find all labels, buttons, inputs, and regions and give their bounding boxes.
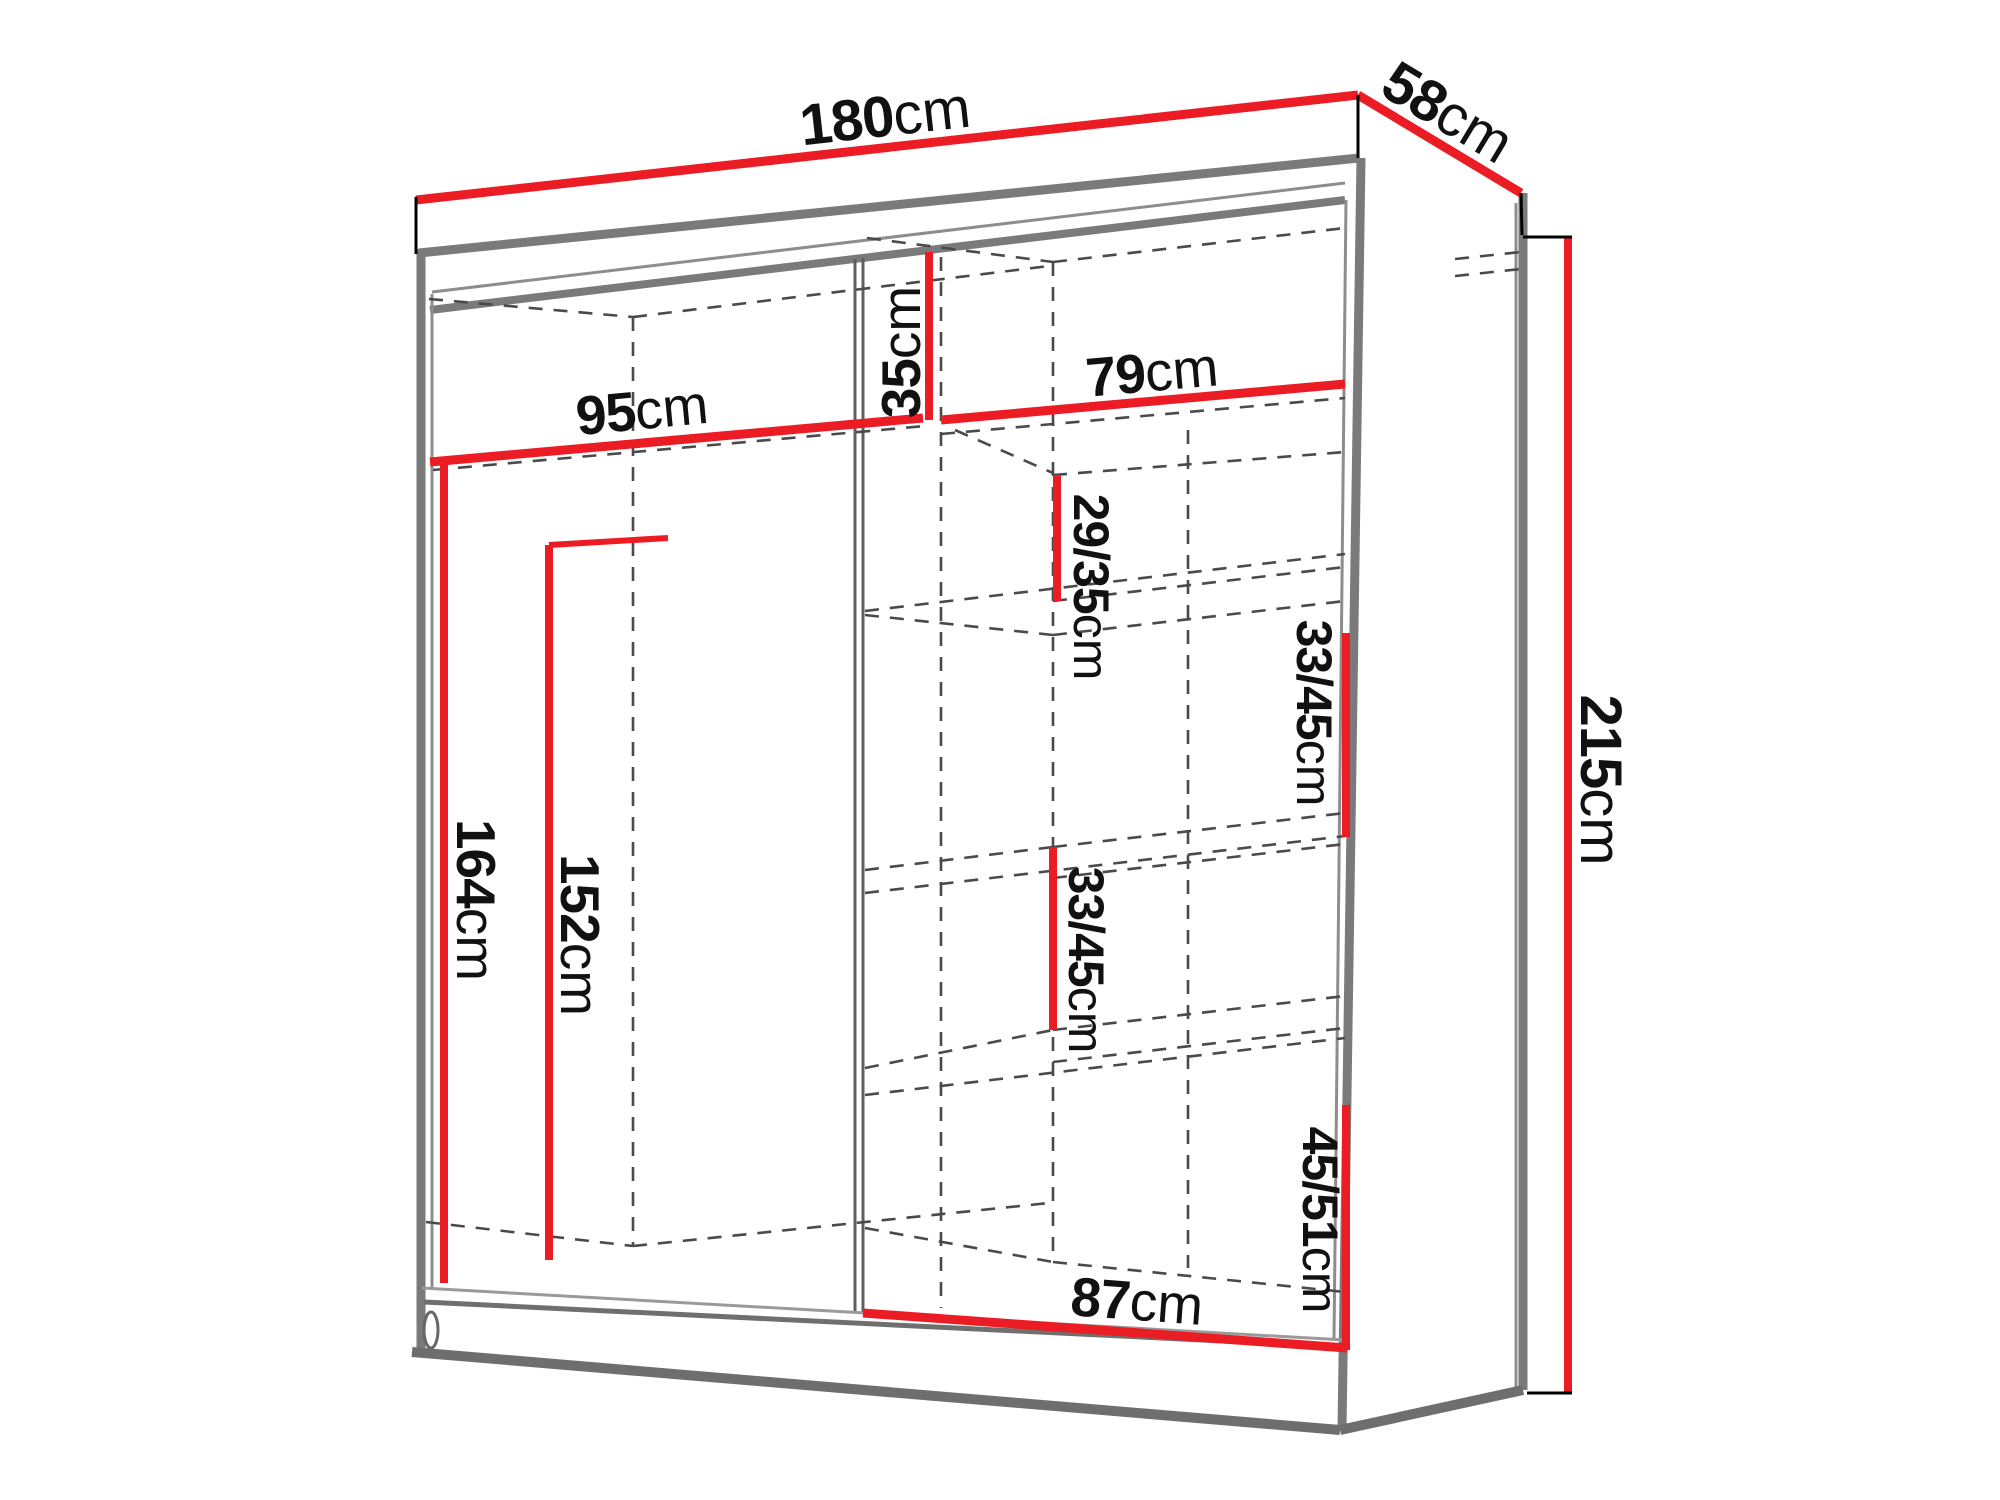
wardrobe-dimension-diagram: 180cm 58cm 215cm 95cm 35cm 79cm 29/35cm … [0,0,2000,1500]
label-cubby-4-height: 45/51cm [1292,1127,1348,1314]
label-left-hanging-height: 164cm [445,819,507,981]
side-panel-dash-1 [1455,252,1521,259]
label-bottom-section-width: 87cm [1069,1265,1206,1337]
label-cubby-1-height: 29/35cm [1063,494,1119,681]
top-shelf-back-edge [1053,452,1345,475]
left-ceiling-back-edge [633,266,1049,317]
foot-detail [424,1312,438,1348]
label-overall-depth: 58cm [1371,48,1524,176]
shelf2-back-top-edge [1053,813,1345,847]
label-left-inner-height: 152cm [549,854,611,1016]
label-cubby-3-height: 33/45cm [1058,867,1114,1054]
label-right-section-width: 79cm [1083,335,1220,408]
label-left-section-width: 95cm [573,373,711,447]
shelf3-recede-line [865,1030,1053,1068]
shelf1-recede-line [865,615,1053,635]
dimension-labels: 180cm 58cm 215cm 95cm 35cm 79cm 29/35cm … [445,48,1634,1337]
shelf2-recede-line [865,847,1053,870]
label-top-compartment-height: 35cm [870,286,932,419]
right-floor-recede-line [865,1228,1053,1262]
diagram-canvas: 180cm 58cm 215cm 95cm 35cm 79cm 29/35cm … [0,0,2000,1500]
label-overall-height: 215cm [1569,694,1634,865]
bottom-side-edge [1340,1390,1523,1430]
dimension-tick-left-inner-top [549,538,668,545]
top-shelf-recede-line [955,430,1053,473]
left-floor-recede-line [426,1222,633,1246]
label-cubby-2-height: 33/45cm [1286,620,1342,807]
side-panel-dash-2 [1455,269,1521,276]
tick-depth-right-end [1521,193,1522,235]
bottom-front-edge [412,1352,1340,1430]
left-floor-back-edge [633,1203,1049,1246]
